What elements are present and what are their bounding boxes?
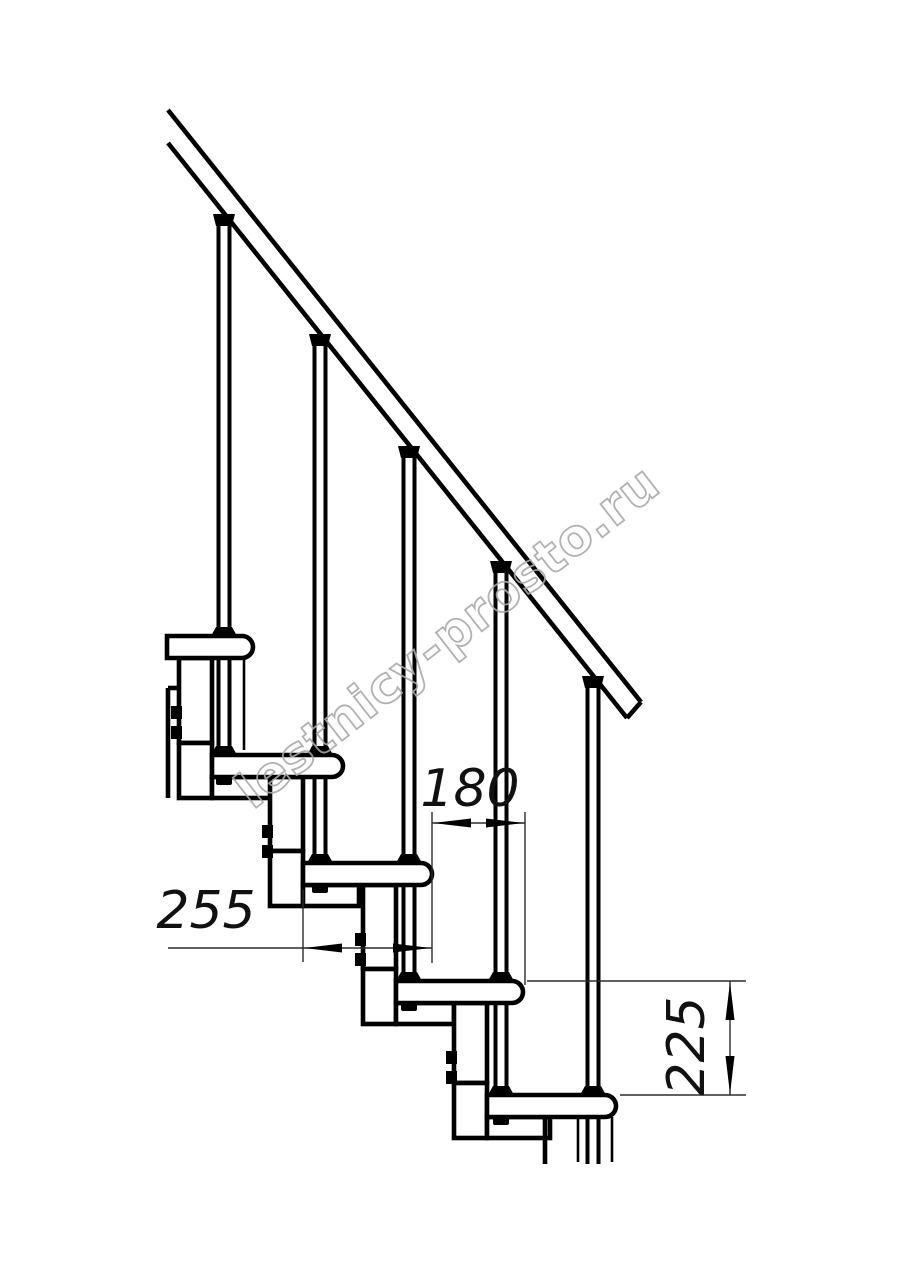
dimension-225: 225 [527,981,746,1096]
rod-foot [211,627,237,636]
rod-foot [488,1086,514,1095]
bolt-nub [312,885,328,893]
bolt-nub [493,1117,509,1125]
bolt-clip [262,845,273,858]
rod-foot [488,972,514,981]
arrowhead-left [433,819,471,828]
bolt-clip [446,1051,457,1064]
tread-3 [303,863,432,885]
tread-1 [167,636,253,658]
dimension-label-225: 225 [657,996,717,1095]
rod-foot [307,854,333,863]
arrowhead-left [304,944,342,953]
arrowhead-up [726,982,735,1020]
tread-4 [396,981,523,1003]
baluster-3 [396,446,422,1011]
dimension-label-255: 255 [156,881,255,941]
rod-foot [580,1086,606,1095]
bolt-clip [446,1071,457,1084]
handrail-end-cap [627,702,641,718]
arrowhead-right [393,944,431,953]
rod-foot [396,972,422,981]
rod-foot [211,746,237,755]
bolt-clip [171,706,182,719]
bolt-nub [401,1003,417,1011]
baluster-5 [580,676,606,1164]
arrowhead-down [726,1056,735,1094]
baluster-4 [488,561,514,1125]
baluster-1 [211,214,237,785]
staircase-drawing: 180 255 225 lestnicy-prosto.ru [0,0,914,1280]
bolt-clip [355,933,366,946]
bolt-clip [262,825,273,838]
dimension-180: 180 [420,759,525,985]
rod-foot [396,854,422,863]
tread-5 [487,1095,616,1117]
baluster-2 [307,334,333,893]
support-module-5-cutoff [545,1117,612,1164]
bolt-clip [355,953,366,966]
technical-drawing-page: 180 255 225 lestnicy-prosto.ru [0,0,914,1280]
dimension-label-180: 180 [420,759,519,819]
bolt-clip [171,726,182,739]
